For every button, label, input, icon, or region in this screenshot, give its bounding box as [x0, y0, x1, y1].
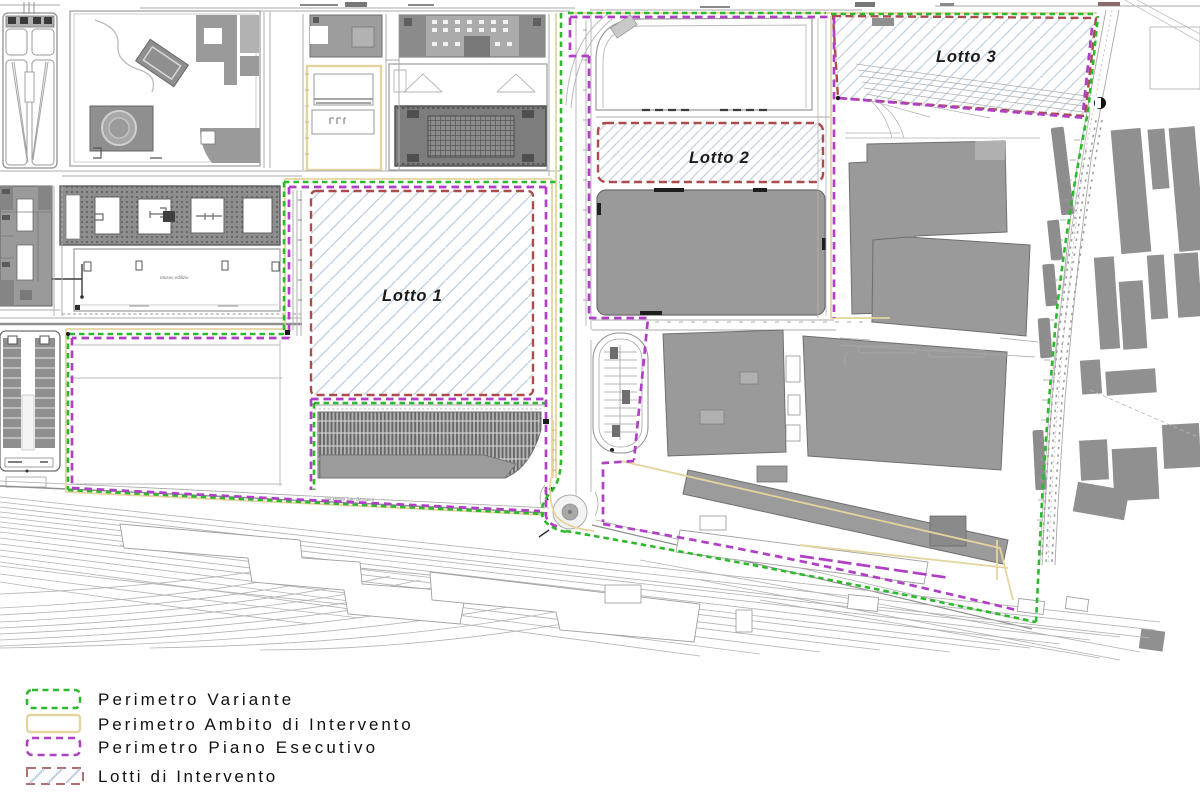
svg-text:Lotti di Intervento: Lotti di Intervento — [98, 767, 278, 786]
svg-text:Museo edilizio: Museo edilizio — [160, 275, 189, 280]
svg-text:Perimetro Ambito di Intervento: Perimetro Ambito di Intervento — [98, 715, 414, 734]
svg-text:Perimetro Piano Esecutivo: Perimetro Piano Esecutivo — [98, 738, 378, 757]
svg-text:Perimetro Variante: Perimetro Variante — [98, 690, 294, 709]
svg-text:Lotto 2: Lotto 2 — [689, 149, 750, 167]
svg-text:Lotto 3: Lotto 3 — [936, 48, 997, 66]
svg-text:Lotto 1: Lotto 1 — [382, 287, 443, 305]
